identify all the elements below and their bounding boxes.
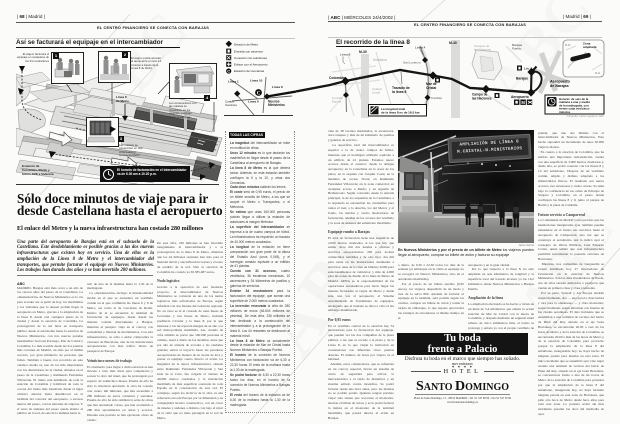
svg-text:San Lorenzo: San Lorenzo xyxy=(403,61,421,65)
svg-text:Pueblo: Pueblo xyxy=(512,47,522,51)
svg-text:M-40: M-40 xyxy=(449,41,457,45)
svg-text:Ministerios: Ministerios xyxy=(268,103,285,107)
svg-text:Línea 8: Línea 8 xyxy=(272,85,283,89)
svg-text:Canillas: Canillas xyxy=(431,96,442,100)
svg-text:Espina: Espina xyxy=(332,100,342,104)
svg-text:C: C xyxy=(257,92,261,97)
svg-text:las Naciones: las Naciones xyxy=(474,48,492,52)
svg-text:Estación de Metro: Estación de Metro xyxy=(234,43,259,47)
svg-text:Línea 6: Línea 6 xyxy=(248,100,259,104)
svg-text:minutos: minutos xyxy=(559,110,571,114)
svg-text:Cristal: Cristal xyxy=(426,86,436,90)
svg-text:Aeropuerto: Aeropuerto xyxy=(511,95,529,99)
svg-text:M: M xyxy=(521,100,525,105)
svg-text:Conexión con autobuses: Conexión con autobuses xyxy=(234,56,268,60)
svg-text:Caminos: Caminos xyxy=(225,103,237,107)
svg-text:de la línea 8 es de 16,5 km: de la línea 8 es de 16,5 km xyxy=(381,111,420,115)
svg-text:ampliada: ampliada xyxy=(583,45,597,49)
svg-text:Línea 8: Línea 8 xyxy=(340,53,351,57)
svg-text:M-11: M-11 xyxy=(595,72,601,75)
svg-text:Estación de Cercanías: Estación de Cercanías xyxy=(234,69,265,73)
svg-text:la línea 8: la línea 8 xyxy=(392,90,406,94)
svg-text:M-30: M-30 xyxy=(359,50,367,54)
svg-text:Lín. 8: Lín. 8 xyxy=(524,67,532,71)
svg-text:C: C xyxy=(227,69,230,74)
svg-text:M-40: M-40 xyxy=(565,44,571,47)
svg-text:Barajas: Barajas xyxy=(516,77,528,81)
svg-text:Línea 1: Línea 1 xyxy=(228,80,239,84)
svg-text:de Barajas: de Barajas xyxy=(550,84,569,88)
svg-text:Hortaleza: Hortaleza xyxy=(373,58,387,62)
svg-text:Línea 4: Línea 4 xyxy=(415,46,426,50)
svg-text:Colombia: Colombia xyxy=(329,76,345,80)
svg-text:las Naciones: las Naciones xyxy=(472,96,492,100)
svg-text:Lineal: Lineal xyxy=(372,91,380,95)
svg-text:Línea 10: Línea 10 xyxy=(250,79,263,83)
svg-text:Enlace con el Aeropuerto: Enlace con el Aeropuerto xyxy=(234,63,268,67)
svg-text:Entrada con ascensor: Entrada con ascensor xyxy=(234,50,263,54)
